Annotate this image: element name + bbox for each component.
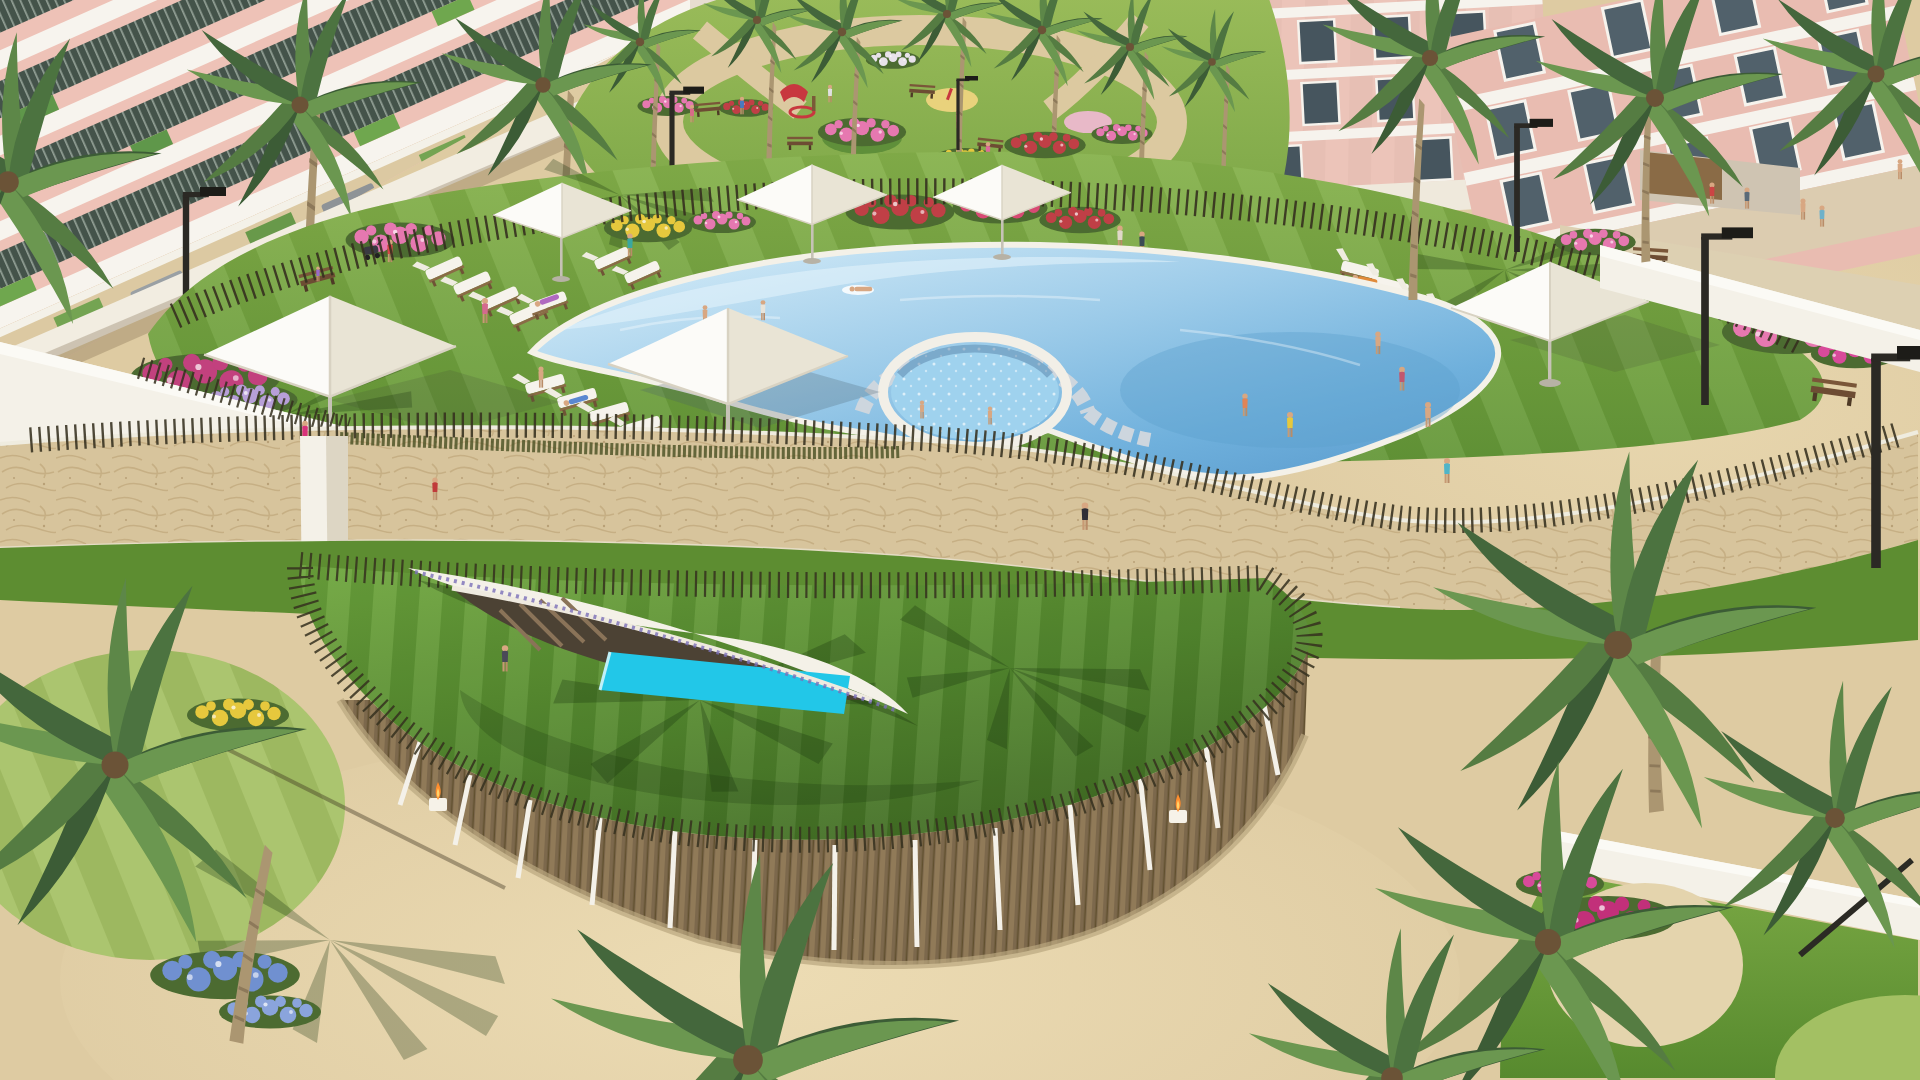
flower-bed [719, 99, 773, 117]
resort-render [0, 0, 1920, 1080]
pool-deep-shade [1120, 332, 1460, 448]
flower-bed [818, 118, 906, 147]
flower-bed [688, 211, 756, 233]
flower-bed-hydrangea [150, 951, 300, 999]
render-canvas [0, 0, 1920, 1080]
flower-bed [1039, 207, 1121, 233]
flower-bed [1004, 132, 1086, 158]
person-swimming [850, 286, 873, 291]
flower-bed-yellow [187, 699, 289, 732]
flower-bed [637, 96, 698, 116]
flower-bed [1554, 229, 1636, 255]
